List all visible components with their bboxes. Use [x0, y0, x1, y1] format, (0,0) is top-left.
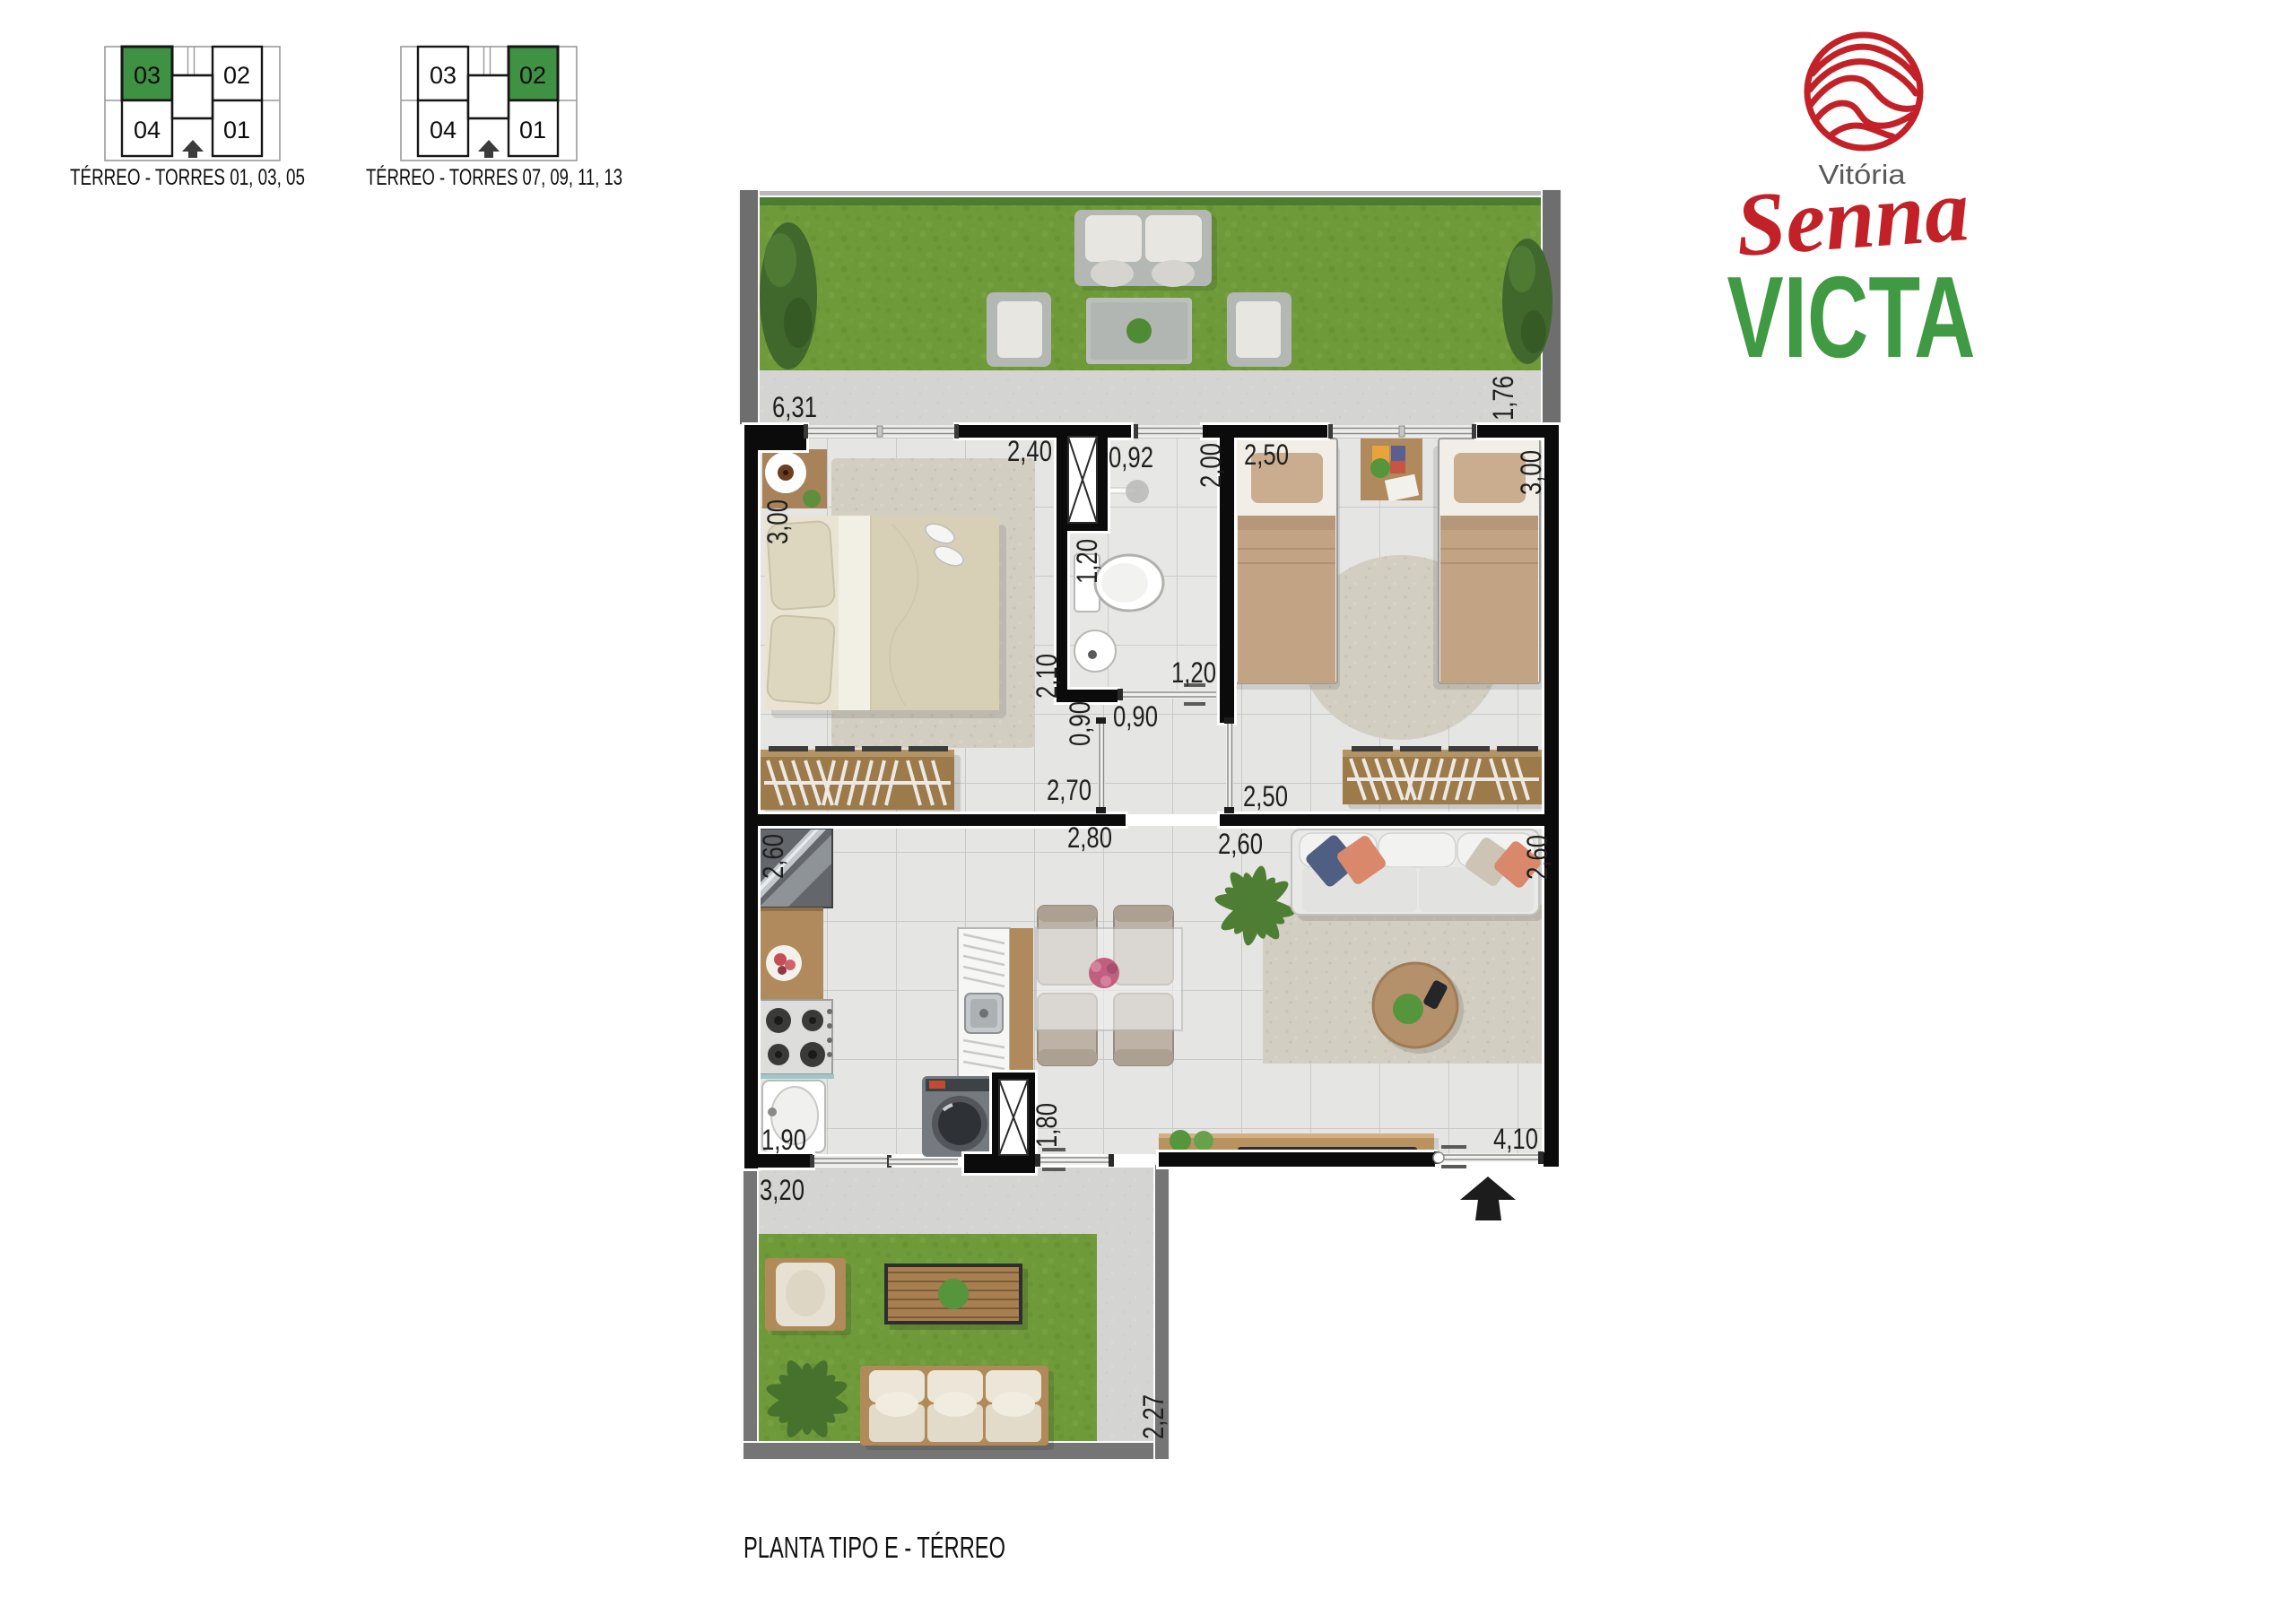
svg-text:04: 04: [134, 117, 161, 143]
svg-text:1,76: 1,76: [1487, 376, 1519, 421]
svg-text:1,20: 1,20: [1071, 539, 1103, 584]
svg-text:2,50: 2,50: [1243, 780, 1288, 812]
svg-text:TÉRREO - TORRES 01, 03, 05: TÉRREO - TORRES 01, 03, 05: [70, 164, 305, 190]
svg-text:TÉRREO - TORRES 07, 09, 11, 13: TÉRREO - TORRES 07, 09, 11, 13: [366, 164, 622, 190]
svg-text:02: 02: [223, 62, 250, 89]
svg-text:03: 03: [134, 62, 161, 89]
svg-text:6,31: 6,31: [772, 391, 817, 423]
svg-text:1,80: 1,80: [1031, 1103, 1063, 1148]
svg-text:2,50: 2,50: [1244, 439, 1289, 471]
svg-text:3,20: 3,20: [760, 1174, 804, 1206]
svg-text:PLANTA TIPO E - TÉRREO: PLANTA TIPO E - TÉRREO: [744, 1531, 1005, 1564]
svg-text:2,10: 2,10: [1031, 654, 1063, 699]
svg-text:0,90: 0,90: [1064, 701, 1096, 746]
svg-text:0,90: 0,90: [1113, 700, 1158, 733]
svg-text:2,60: 2,60: [757, 834, 789, 879]
svg-text:04: 04: [430, 117, 457, 143]
svg-text:01: 01: [519, 117, 546, 143]
svg-text:2,80: 2,80: [1067, 821, 1112, 854]
svg-text:2,00: 2,00: [1195, 443, 1227, 488]
svg-text:02: 02: [519, 62, 546, 89]
svg-text:2,60: 2,60: [1218, 828, 1263, 860]
svg-text:4,10: 4,10: [1493, 1123, 1538, 1155]
svg-text:VICTA: VICTA: [1727, 253, 1976, 382]
svg-text:3,00: 3,00: [1515, 450, 1547, 495]
svg-text:2,60: 2,60: [1521, 835, 1553, 880]
svg-text:0,92: 0,92: [1109, 441, 1153, 473]
svg-text:1,90: 1,90: [761, 1124, 806, 1156]
svg-text:2,40: 2,40: [1007, 435, 1052, 467]
svg-text:3,00: 3,00: [761, 499, 794, 544]
svg-text:1,20: 1,20: [1171, 656, 1216, 689]
svg-text:2,70: 2,70: [1047, 774, 1091, 806]
svg-text:2,27: 2,27: [1137, 1394, 1170, 1439]
svg-text:01: 01: [223, 117, 250, 143]
svg-text:03: 03: [430, 62, 457, 89]
